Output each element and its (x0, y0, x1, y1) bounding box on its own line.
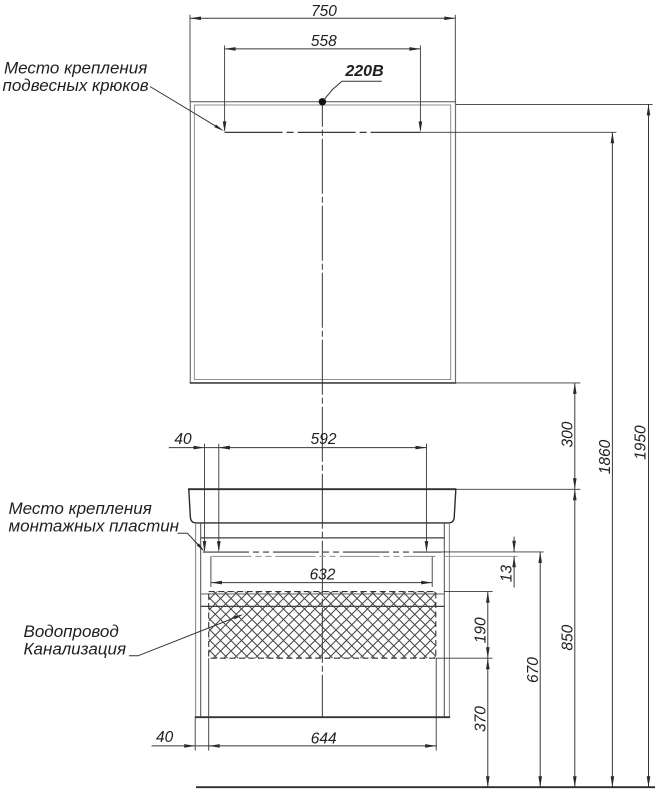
svg-text:1950: 1950 (633, 425, 650, 460)
svg-text:632: 632 (310, 566, 336, 583)
svg-text:Место крепления: Место крепления (9, 499, 152, 518)
svg-text:40: 40 (156, 729, 174, 746)
svg-text:1860: 1860 (597, 439, 614, 474)
svg-text:монтажных пластин: монтажных пластин (9, 517, 180, 536)
svg-text:190: 190 (473, 617, 490, 643)
svg-text:Канализация: Канализация (24, 639, 127, 658)
svg-text:220В: 220В (344, 63, 383, 80)
svg-text:592: 592 (311, 431, 337, 448)
svg-text:300: 300 (559, 421, 576, 447)
svg-text:558: 558 (311, 33, 337, 50)
svg-text:Место крепления: Место крепления (4, 59, 147, 78)
svg-text:13: 13 (499, 565, 516, 583)
svg-text:370: 370 (473, 706, 490, 732)
svg-text:670: 670 (525, 657, 542, 683)
svg-text:Водопровод: Водопровод (24, 622, 119, 641)
svg-text:подвесных крюков: подвесных крюков (3, 76, 149, 95)
svg-text:40: 40 (174, 431, 192, 448)
svg-text:750: 750 (311, 3, 337, 20)
svg-text:850: 850 (559, 624, 576, 650)
svg-text:644: 644 (311, 731, 337, 748)
